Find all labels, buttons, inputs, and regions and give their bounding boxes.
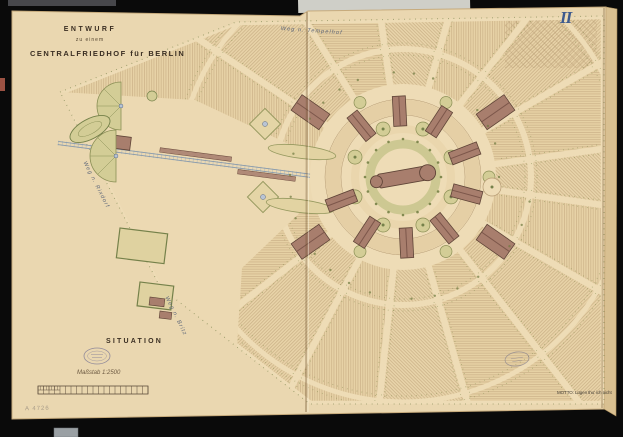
shrub-icon	[456, 287, 458, 289]
title-line-3: CENTRALFRIEDHOF für BERLIN	[30, 50, 172, 58]
shrub-icon	[338, 88, 340, 90]
shrub-icon	[357, 79, 359, 81]
shrub-icon	[494, 142, 496, 144]
title-line-2: zu einem	[58, 38, 122, 43]
fold-line	[306, 12, 307, 412]
section-label: SITUATION	[106, 338, 163, 345]
shrub-icon	[387, 211, 390, 214]
shrub-icon	[421, 128, 424, 131]
shrub-icon	[289, 174, 291, 176]
shrub-icon	[416, 141, 419, 144]
shrub-icon	[367, 161, 370, 164]
shrub-icon	[402, 138, 405, 141]
shrub-icon	[437, 161, 440, 164]
shrub-icon	[354, 156, 357, 159]
shrub-icon	[375, 149, 378, 152]
garden-bed	[354, 97, 366, 109]
red-tab	[0, 78, 5, 91]
shrub-icon	[348, 282, 350, 284]
gray-tab	[54, 428, 78, 437]
scale-bar	[38, 386, 148, 394]
shrub-icon	[382, 224, 385, 227]
scale-label: Maßstab 1:2500	[77, 370, 120, 376]
shrub-icon	[498, 176, 500, 178]
motto-text: MOTTO: Lügen thu' ich nicht	[557, 391, 612, 396]
plate-number: II	[560, 9, 571, 26]
shrub-icon	[364, 176, 367, 179]
fountain-icon	[263, 122, 268, 127]
catalog-note: A 4726	[25, 406, 50, 412]
shrub-icon	[290, 196, 292, 198]
shrub-icon	[382, 128, 385, 131]
east-plaza-bed	[491, 186, 494, 189]
shrub-icon	[375, 203, 378, 206]
shrub-icon	[429, 203, 432, 206]
shrub-icon	[410, 298, 412, 300]
shrub-icon	[367, 190, 370, 193]
shrub-icon	[292, 153, 294, 155]
shrub-icon	[314, 253, 316, 255]
shrub-icon	[421, 224, 424, 227]
garden-bed	[440, 246, 452, 258]
shrub-icon	[487, 125, 489, 127]
shrub-icon	[521, 224, 523, 226]
fountain-icon	[114, 154, 118, 158]
scanned-album-page: ENTWURF zu einem CENTRALFRIEDHOF für BER…	[0, 0, 623, 437]
nursery-plot	[116, 228, 167, 264]
shrub-icon	[413, 72, 415, 74]
shrub-icon	[387, 141, 390, 144]
shrub-icon	[393, 71, 395, 73]
shrub-icon	[437, 190, 440, 193]
shrub-icon	[429, 149, 432, 152]
round-bed	[147, 91, 157, 101]
title-line-1: ENTWURF	[58, 26, 122, 33]
fountain-icon	[119, 104, 123, 108]
shrub-icon	[477, 276, 479, 278]
shrub-icon	[440, 176, 443, 179]
shrub-icon	[329, 269, 331, 271]
shrub-icon	[369, 291, 371, 293]
shrub-icon	[528, 200, 530, 202]
shrub-icon	[434, 295, 436, 297]
shrub-icon	[476, 109, 478, 111]
shrub-icon	[322, 102, 324, 104]
shrub-icon	[416, 211, 419, 214]
shrub-icon	[402, 214, 405, 217]
shrub-icon	[432, 77, 434, 79]
dark-strip-top	[8, 0, 116, 6]
shrub-icon	[508, 245, 510, 247]
shrub-icon	[294, 217, 296, 219]
fountain-icon	[261, 195, 266, 200]
